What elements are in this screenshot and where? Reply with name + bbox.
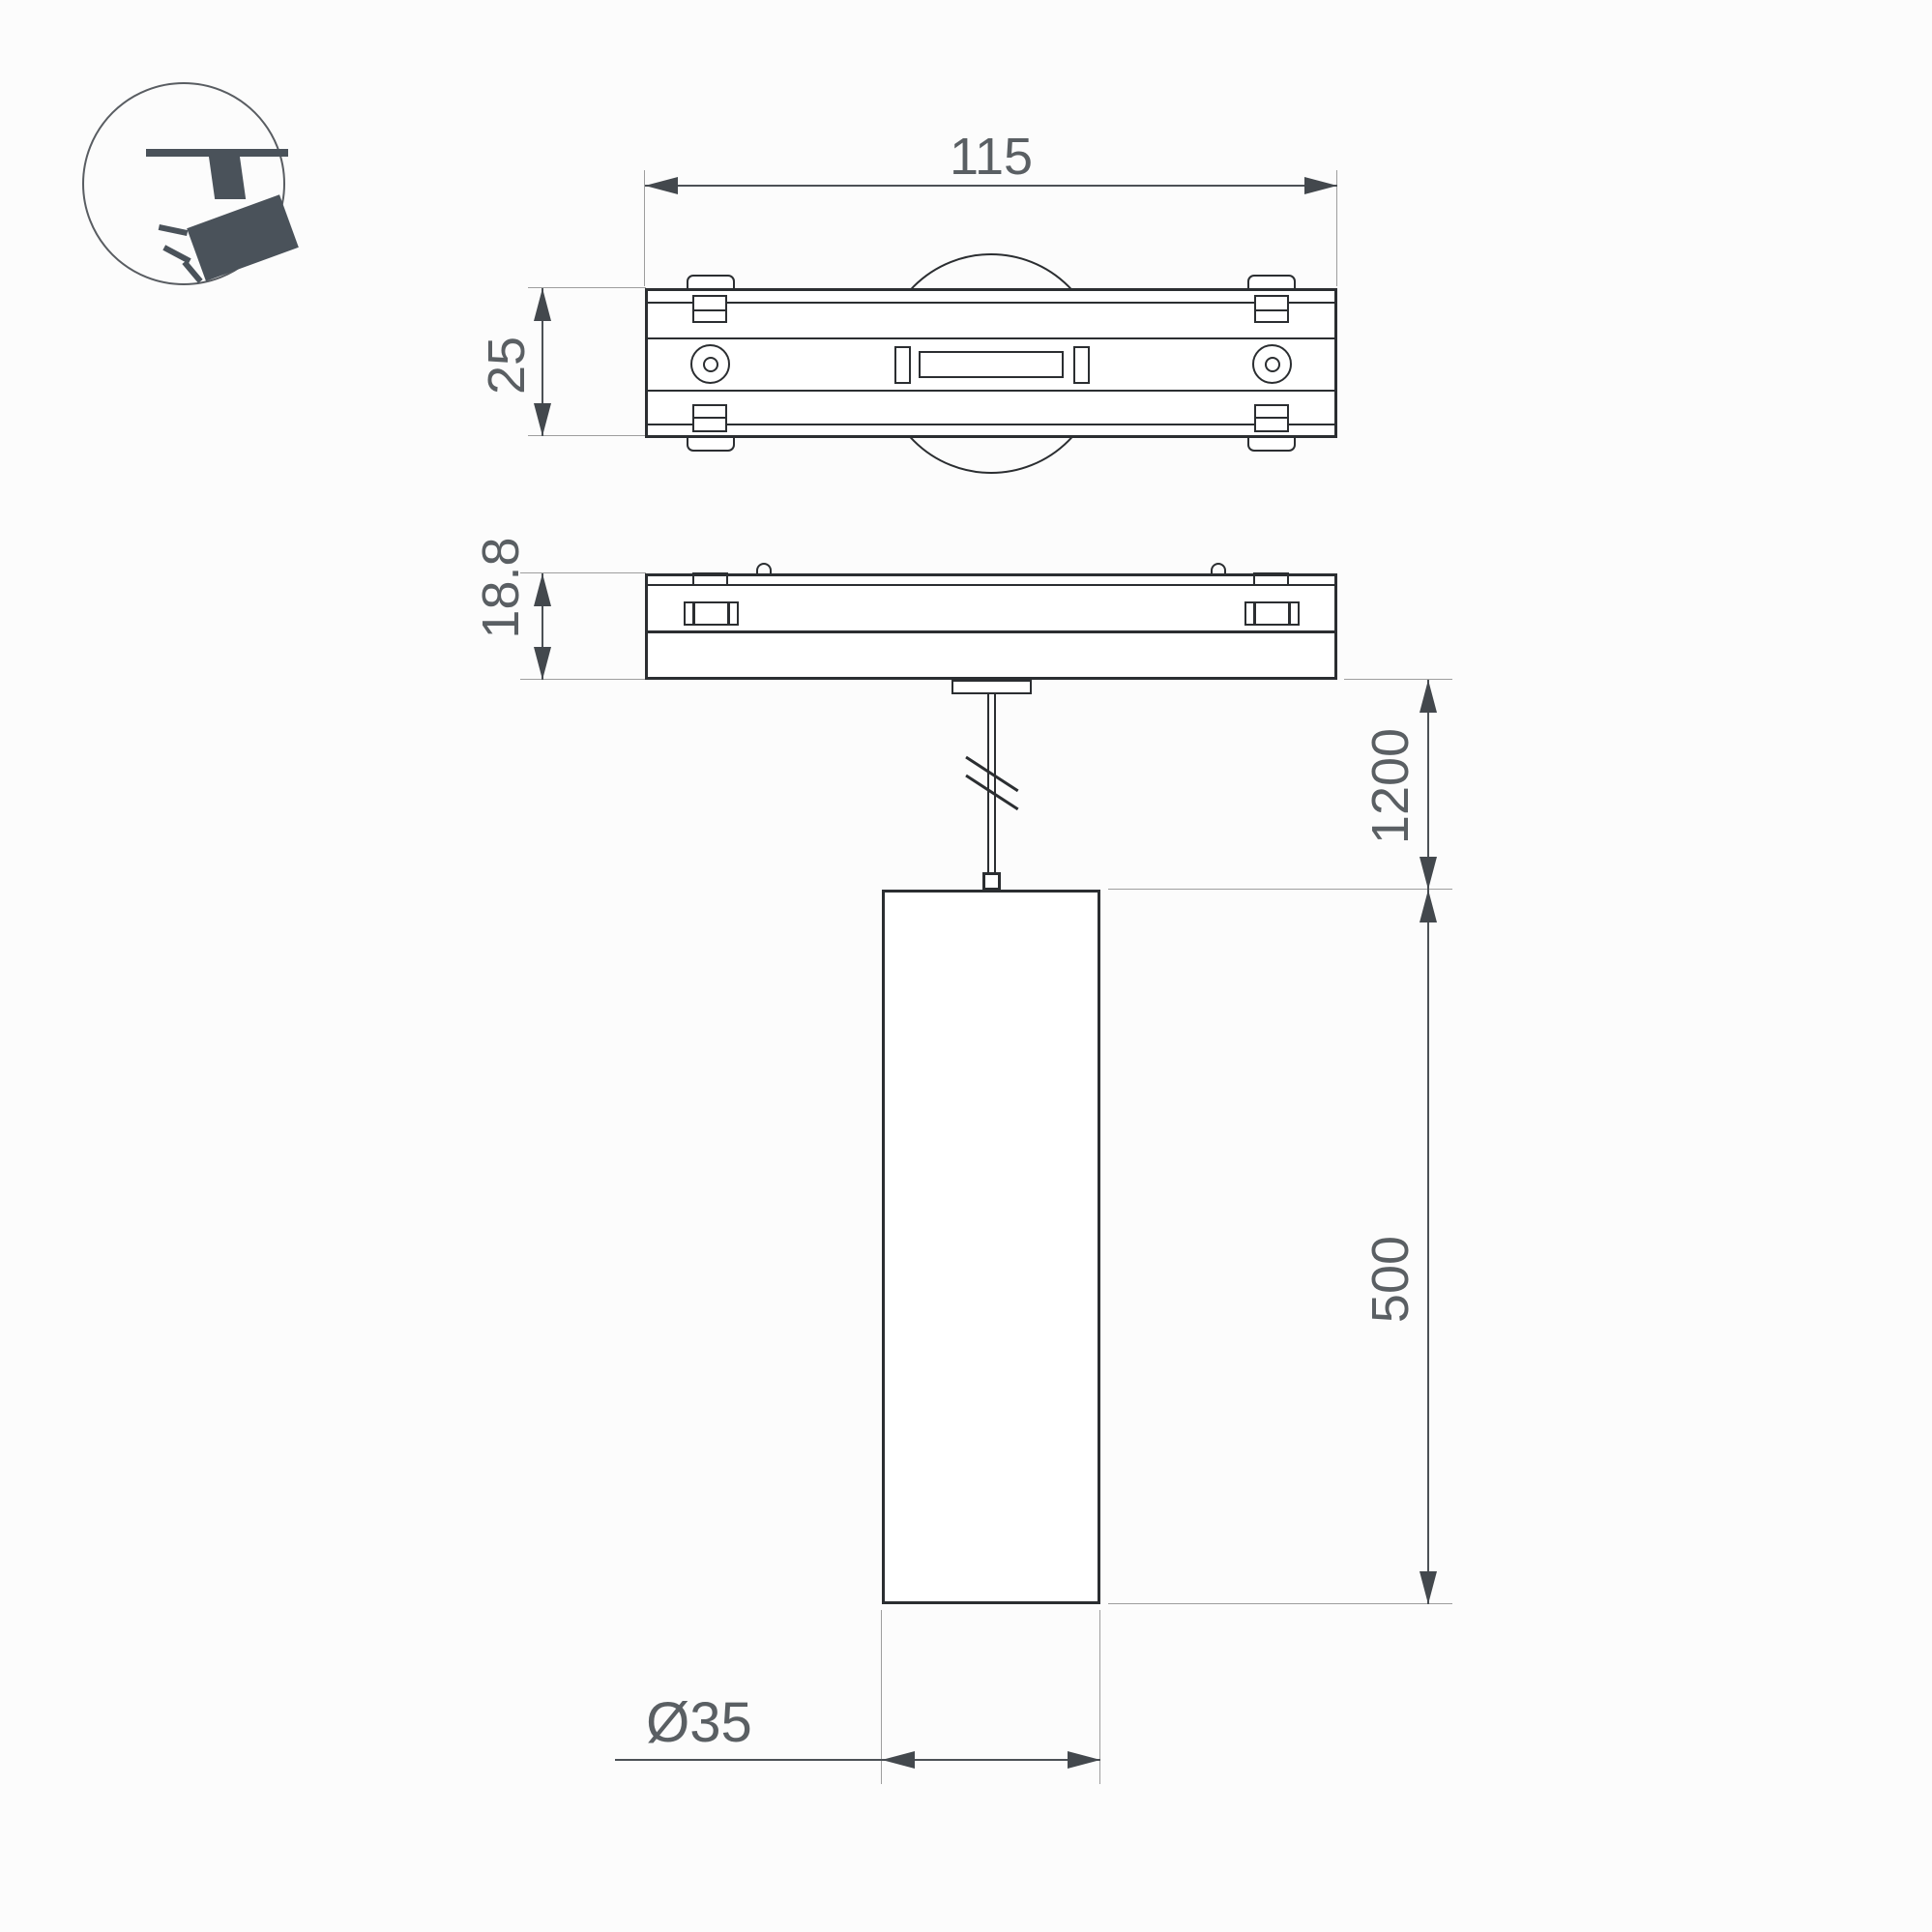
contact-slot-window <box>919 351 1064 378</box>
suspension-cable <box>987 692 996 874</box>
fixture-stem-icon <box>209 156 246 199</box>
arrowhead <box>1304 177 1337 194</box>
dim-label-adapter-height: 18.8 <box>474 520 528 656</box>
contact-block-line <box>727 601 730 626</box>
dim-label-body-height: 500 <box>1363 1192 1418 1366</box>
spring-clip-line <box>1254 309 1289 311</box>
pendant-cylinder-body <box>882 890 1100 1604</box>
arrowhead <box>1420 890 1437 922</box>
arrowhead <box>1068 1751 1100 1769</box>
suspension-canopy <box>951 680 1032 694</box>
side-view-adapter-body <box>645 573 1337 680</box>
spring-clip-line <box>692 309 727 311</box>
arrowhead <box>534 647 551 680</box>
extension-line <box>1108 1603 1452 1604</box>
arrowhead <box>534 288 551 321</box>
side-view-strip-line <box>645 584 1337 586</box>
light-ray-icon <box>159 224 189 236</box>
dim-label-body-diameter: Ø35 <box>617 1694 781 1752</box>
contact-slot-end <box>1073 346 1090 384</box>
top-view-edge-line <box>645 302 1337 304</box>
leader-line <box>615 1759 882 1761</box>
spring-clip-line <box>1254 417 1289 419</box>
arrowhead <box>645 177 678 194</box>
dimension-line <box>1427 890 1429 1604</box>
contact-slot-end <box>894 346 911 384</box>
contact-block-line <box>1288 601 1291 626</box>
track-spotlight-icon <box>82 82 285 285</box>
contact-block-line <box>692 601 695 626</box>
dimension-drawing: 115 25 18.8 1200 500 <box>0 0 1932 1932</box>
arrowhead <box>1420 680 1437 713</box>
fixture-head-icon <box>187 194 299 280</box>
top-view-edge-line <box>645 390 1337 392</box>
screw-hole-center <box>1265 357 1280 372</box>
side-view-mid-line <box>645 630 1337 633</box>
dim-label-track-depth: 25 <box>480 307 534 424</box>
arrowhead <box>1420 1571 1437 1604</box>
contact-block-line <box>1253 601 1256 626</box>
top-view-edge-line <box>645 337 1337 339</box>
arrowhead <box>1420 857 1437 890</box>
strip-clip <box>1253 572 1289 586</box>
top-view-edge-line <box>645 424 1337 425</box>
arrowhead <box>534 573 551 606</box>
strip-clip <box>692 572 728 586</box>
spring-clip-line <box>692 417 727 419</box>
screw-hole-center <box>703 357 718 372</box>
dim-label-track-width: 115 <box>914 130 1068 184</box>
dim-label-suspension-length: 1200 <box>1363 680 1418 893</box>
cable-gripper <box>982 872 1001 891</box>
arrowhead <box>534 403 551 436</box>
arrowhead <box>882 1751 915 1769</box>
